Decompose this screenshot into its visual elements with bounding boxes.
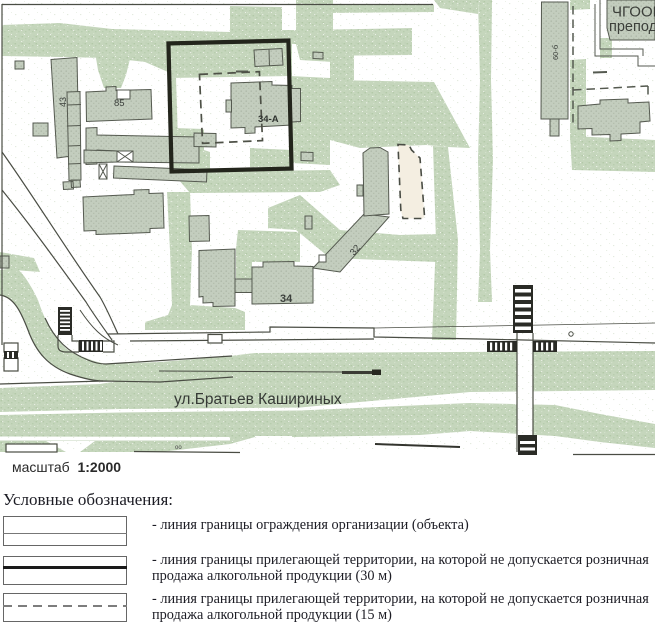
svg-text:85: 85 [114,98,125,109]
svg-text:ЧГООИ: ЧГООИ [612,4,655,21]
svg-text:оо: оо [175,445,182,451]
svg-text:ул.Братьев Кашириных: ул.Братьев Кашириных [174,391,342,408]
svg-text:препода: препода [609,19,655,35]
svg-text:34-А: 34-А [258,114,279,125]
svg-text:60-б: 60-б [551,45,560,60]
svg-text:34: 34 [280,293,293,305]
svg-text:43: 43 [58,97,68,107]
